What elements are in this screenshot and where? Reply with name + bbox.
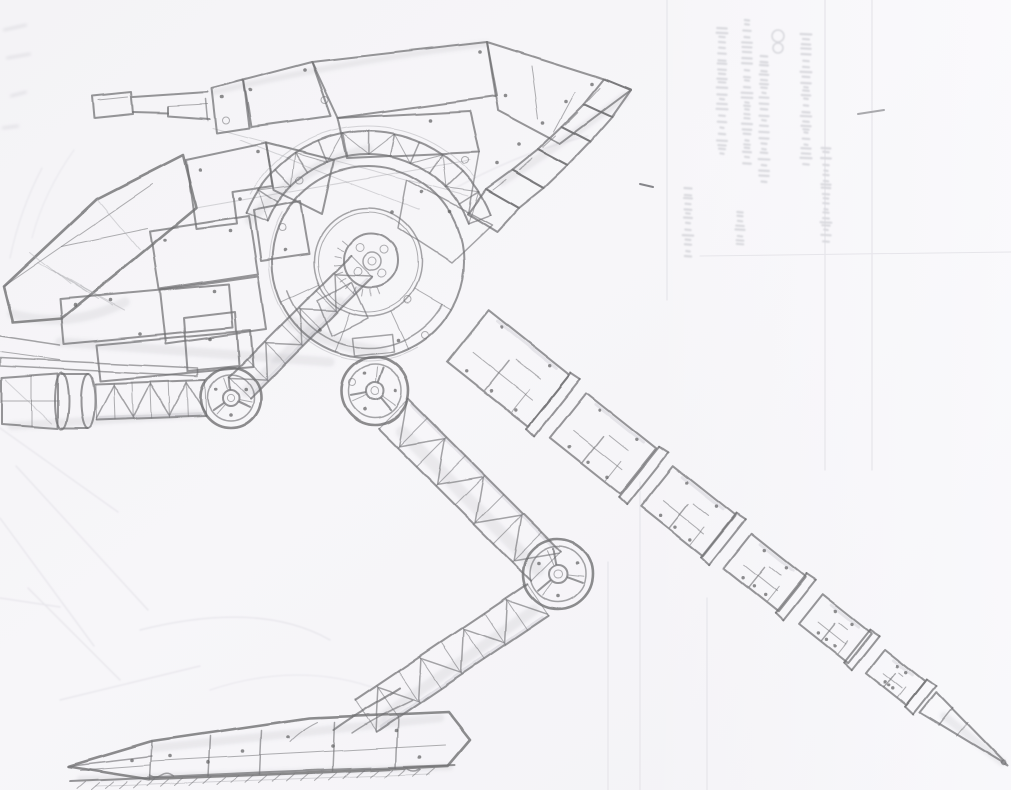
scanned-page: Pencil sketch — bipedal walker mech xyxy=(0,0,1011,790)
walker-sketch-scan: Pencil sketch — bipedal walker mech xyxy=(0,0,1011,790)
